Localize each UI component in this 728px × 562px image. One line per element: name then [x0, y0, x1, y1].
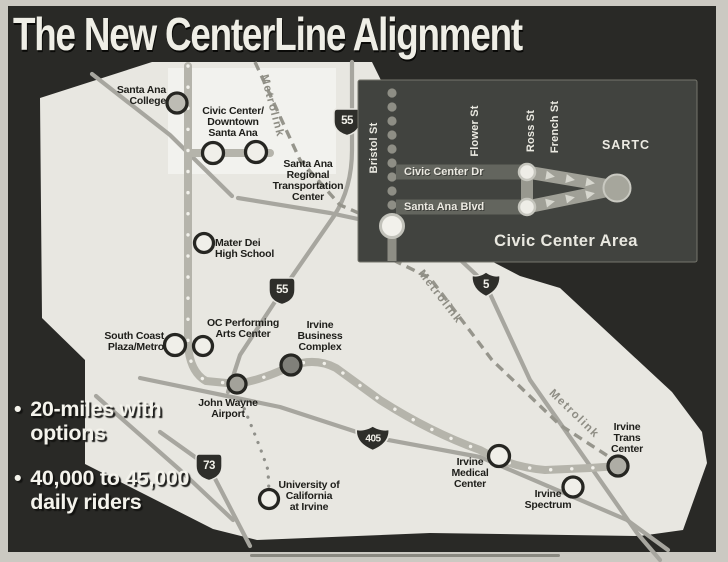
inset-station-civic-center-dr [519, 164, 535, 180]
inset-station-sartc [604, 175, 631, 202]
scan-artifact [250, 554, 560, 557]
label-irvine-medical-center: Irvine Medical Center [451, 457, 488, 490]
label-john-wayne-airport: John Wayne Airport [198, 398, 257, 420]
bullet-riders-text: 40,000 to 45,000 daily riders [30, 467, 189, 514]
label-bristol-st: Bristol St [368, 123, 380, 174]
inset-title: Civic Center Area [494, 232, 638, 251]
label-uci: University of California at Irvine [279, 480, 340, 513]
inset-station-bristol-santa-ana [381, 215, 404, 238]
page-title: The New CenterLine Alignment [13, 7, 522, 61]
label-french-st: French St [549, 101, 561, 154]
bullet-miles-text: 20-miles with options [30, 398, 161, 445]
bullet-marker-icon: • [14, 467, 21, 514]
label-civic-center-dr: Civic Center Dr [404, 166, 483, 178]
shield-73-number: 73 [203, 460, 215, 472]
station-dot-john-wayne-airport [228, 375, 246, 393]
label-irvine-spectrum: Irvine Spectrum [525, 489, 572, 511]
shield-i5-number: 5 [483, 279, 489, 291]
label-flower-st: Flower St [469, 105, 481, 156]
label-santa-ana-college: Santa Ana College [117, 85, 166, 107]
station-dot-irvine-medical-center [489, 446, 510, 467]
label-mater-dei: Mater Dei High School [215, 238, 274, 260]
station-dot-santa-ana-college [167, 93, 187, 113]
label-south-coast-plaza: South Coast Plaza/Metro [104, 331, 164, 353]
label-ross-st: Ross St [525, 110, 537, 152]
scanned-map-page: The New CenterLine Alignment • 20-miles … [0, 0, 728, 562]
shield-55-south-number: 55 [276, 284, 288, 296]
label-irvine-trans-center: Irvine Trans Center [611, 422, 643, 455]
label-santa-ana-blvd: Santa Ana Blvd [404, 201, 484, 213]
shield-i405-number: 405 [365, 434, 380, 445]
label-civic-center-downtown: Civic Center/ Downtown Santa Ana [202, 106, 264, 139]
station-dot-south-coast-plaza [165, 335, 186, 356]
inset-station-santa-ana-blvd [519, 199, 535, 215]
bristol-st-dots [387, 88, 396, 209]
station-dot-irvine-trans-center [608, 456, 628, 476]
label-santa-ana-rtc: Santa Ana Regional Transportation Center [273, 159, 344, 203]
label-sartc: SARTC [602, 138, 650, 152]
shield-55-north-number: 55 [341, 115, 353, 127]
station-dot-civic-center-west [203, 143, 224, 164]
label-oc-performing-arts: OC Performing Arts Center [207, 318, 279, 340]
bullet-riders: • 40,000 to 45,000 daily riders [14, 467, 274, 514]
bullet-marker-icon: • [14, 398, 21, 445]
station-dot-mater-dei [195, 234, 214, 253]
station-dot-irvine-business-complex [281, 355, 301, 375]
label-irvine-business-complex: Irvine Business Complex [297, 320, 342, 353]
station-dot-civic-center-east [246, 142, 267, 163]
